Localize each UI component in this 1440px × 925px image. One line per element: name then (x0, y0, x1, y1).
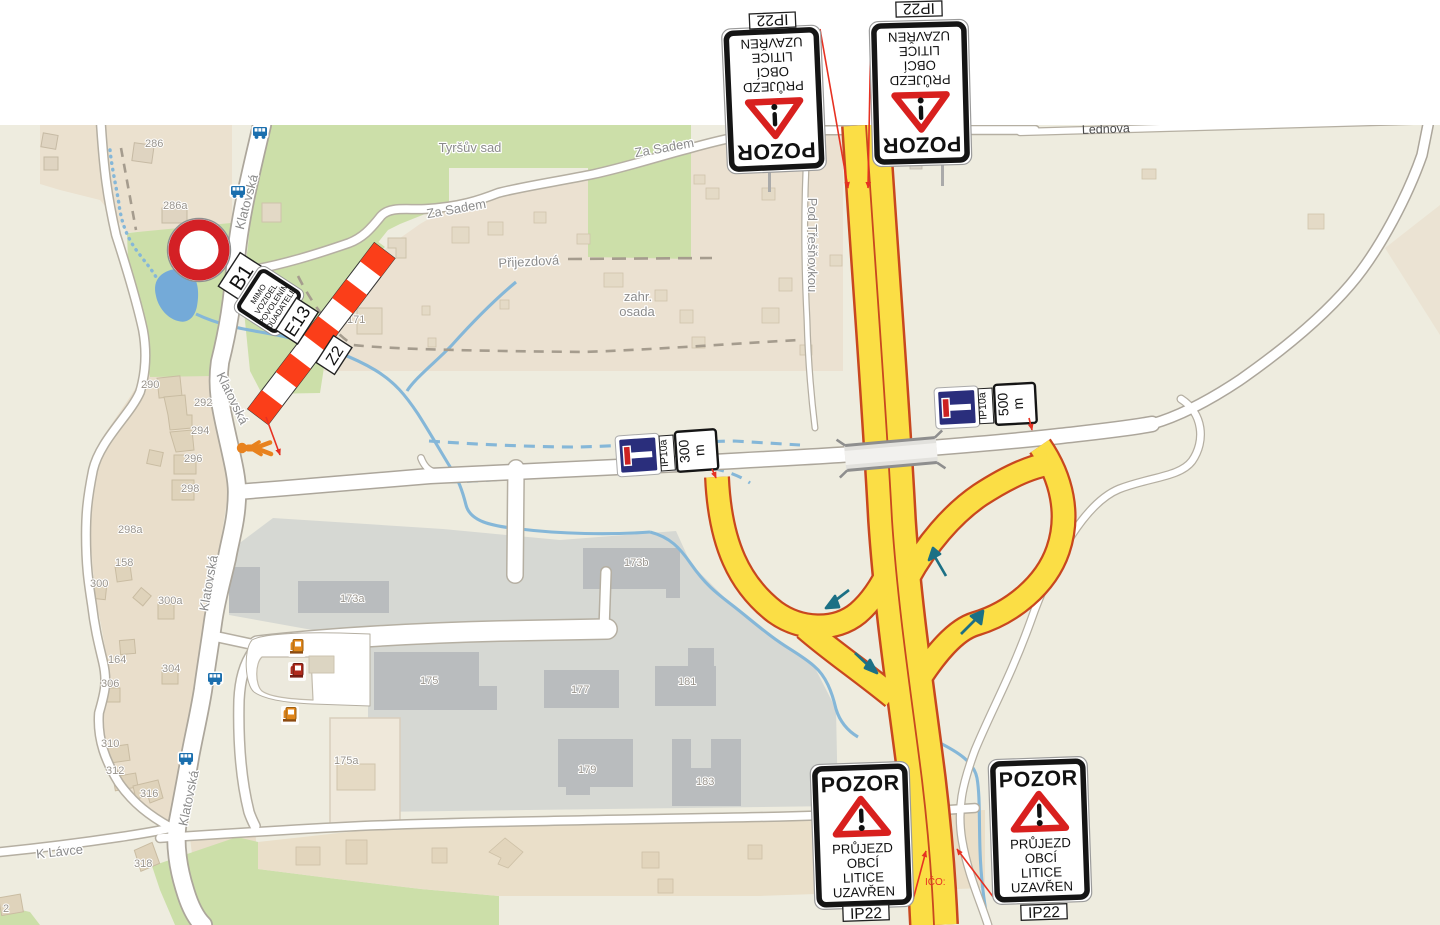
svg-text:286: 286 (145, 138, 163, 150)
svg-text:290: 290 (141, 379, 159, 391)
svg-text:310: 310 (101, 738, 119, 750)
svg-text:304: 304 (162, 663, 180, 675)
svg-text:zahr.: zahr. (624, 289, 652, 304)
svg-text:164: 164 (108, 654, 126, 666)
svg-text:300a: 300a (158, 595, 183, 607)
svg-text:158: 158 (115, 557, 133, 569)
svg-text:296: 296 (184, 453, 202, 465)
svg-text:osada: osada (619, 304, 655, 319)
svg-text:IČO:: IČO: (925, 875, 946, 888)
svg-text:2: 2 (3, 903, 9, 915)
svg-text:m: m (691, 444, 708, 457)
svg-text:177: 177 (571, 684, 589, 696)
svg-text:292: 292 (194, 397, 212, 409)
svg-text:Lednova: Lednova (1082, 121, 1130, 137)
svg-text:294: 294 (191, 425, 209, 437)
svg-text:175a: 175a (334, 755, 359, 767)
svg-text:173b: 173b (624, 557, 648, 569)
svg-text:306: 306 (101, 678, 119, 690)
svg-text:300: 300 (90, 578, 108, 590)
svg-text:298: 298 (181, 483, 199, 495)
svg-text:175: 175 (420, 675, 438, 687)
svg-text:179: 179 (578, 764, 596, 776)
svg-text:181: 181 (678, 676, 696, 688)
svg-text:183: 183 (696, 776, 714, 788)
svg-text:298a: 298a (118, 524, 143, 536)
svg-text:Přijezdová: Přijezdová (498, 252, 560, 270)
svg-text:318: 318 (134, 858, 152, 870)
svg-text:Pod Třešňovkou: Pod Třešňovkou (805, 198, 820, 292)
svg-text:286a: 286a (163, 200, 188, 212)
svg-text:Tyršův sad: Tyršův sad (439, 140, 502, 155)
svg-text:312: 312 (106, 765, 124, 777)
svg-text:316: 316 (140, 788, 158, 800)
svg-text:173a: 173a (340, 593, 365, 605)
svg-text:m: m (1010, 397, 1027, 409)
